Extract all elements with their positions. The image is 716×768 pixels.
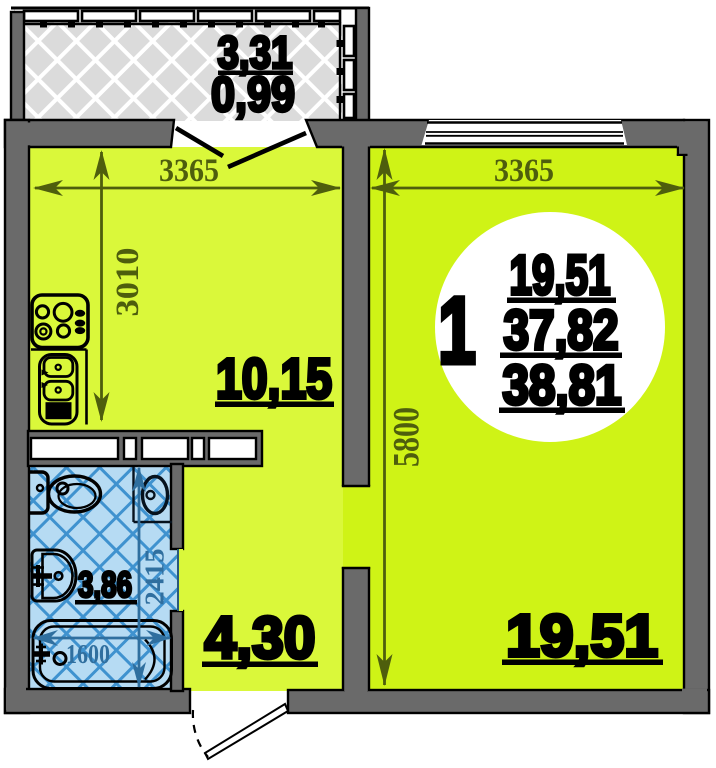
svg-text:1: 1	[438, 278, 476, 384]
svg-text:4,30: 4,30	[205, 605, 316, 671]
svg-text:3010: 3010	[110, 248, 146, 317]
svg-text:19,51: 19,51	[510, 243, 611, 306]
svg-text:37,82: 37,82	[504, 298, 619, 361]
svg-text:3,86: 3,86	[78, 564, 132, 605]
svg-text:10,15: 10,15	[216, 347, 332, 411]
svg-text:5800: 5800	[387, 407, 428, 467]
svg-text:19,51: 19,51	[506, 603, 658, 669]
svg-text:2415: 2415	[140, 549, 170, 606]
svg-text:0,99: 0,99	[211, 68, 295, 122]
svg-text:38,81: 38,81	[503, 353, 622, 416]
svg-text:3365: 3365	[494, 153, 554, 189]
svg-text:3365: 3365	[159, 153, 219, 189]
svg-text:1600: 1600	[66, 639, 110, 669]
